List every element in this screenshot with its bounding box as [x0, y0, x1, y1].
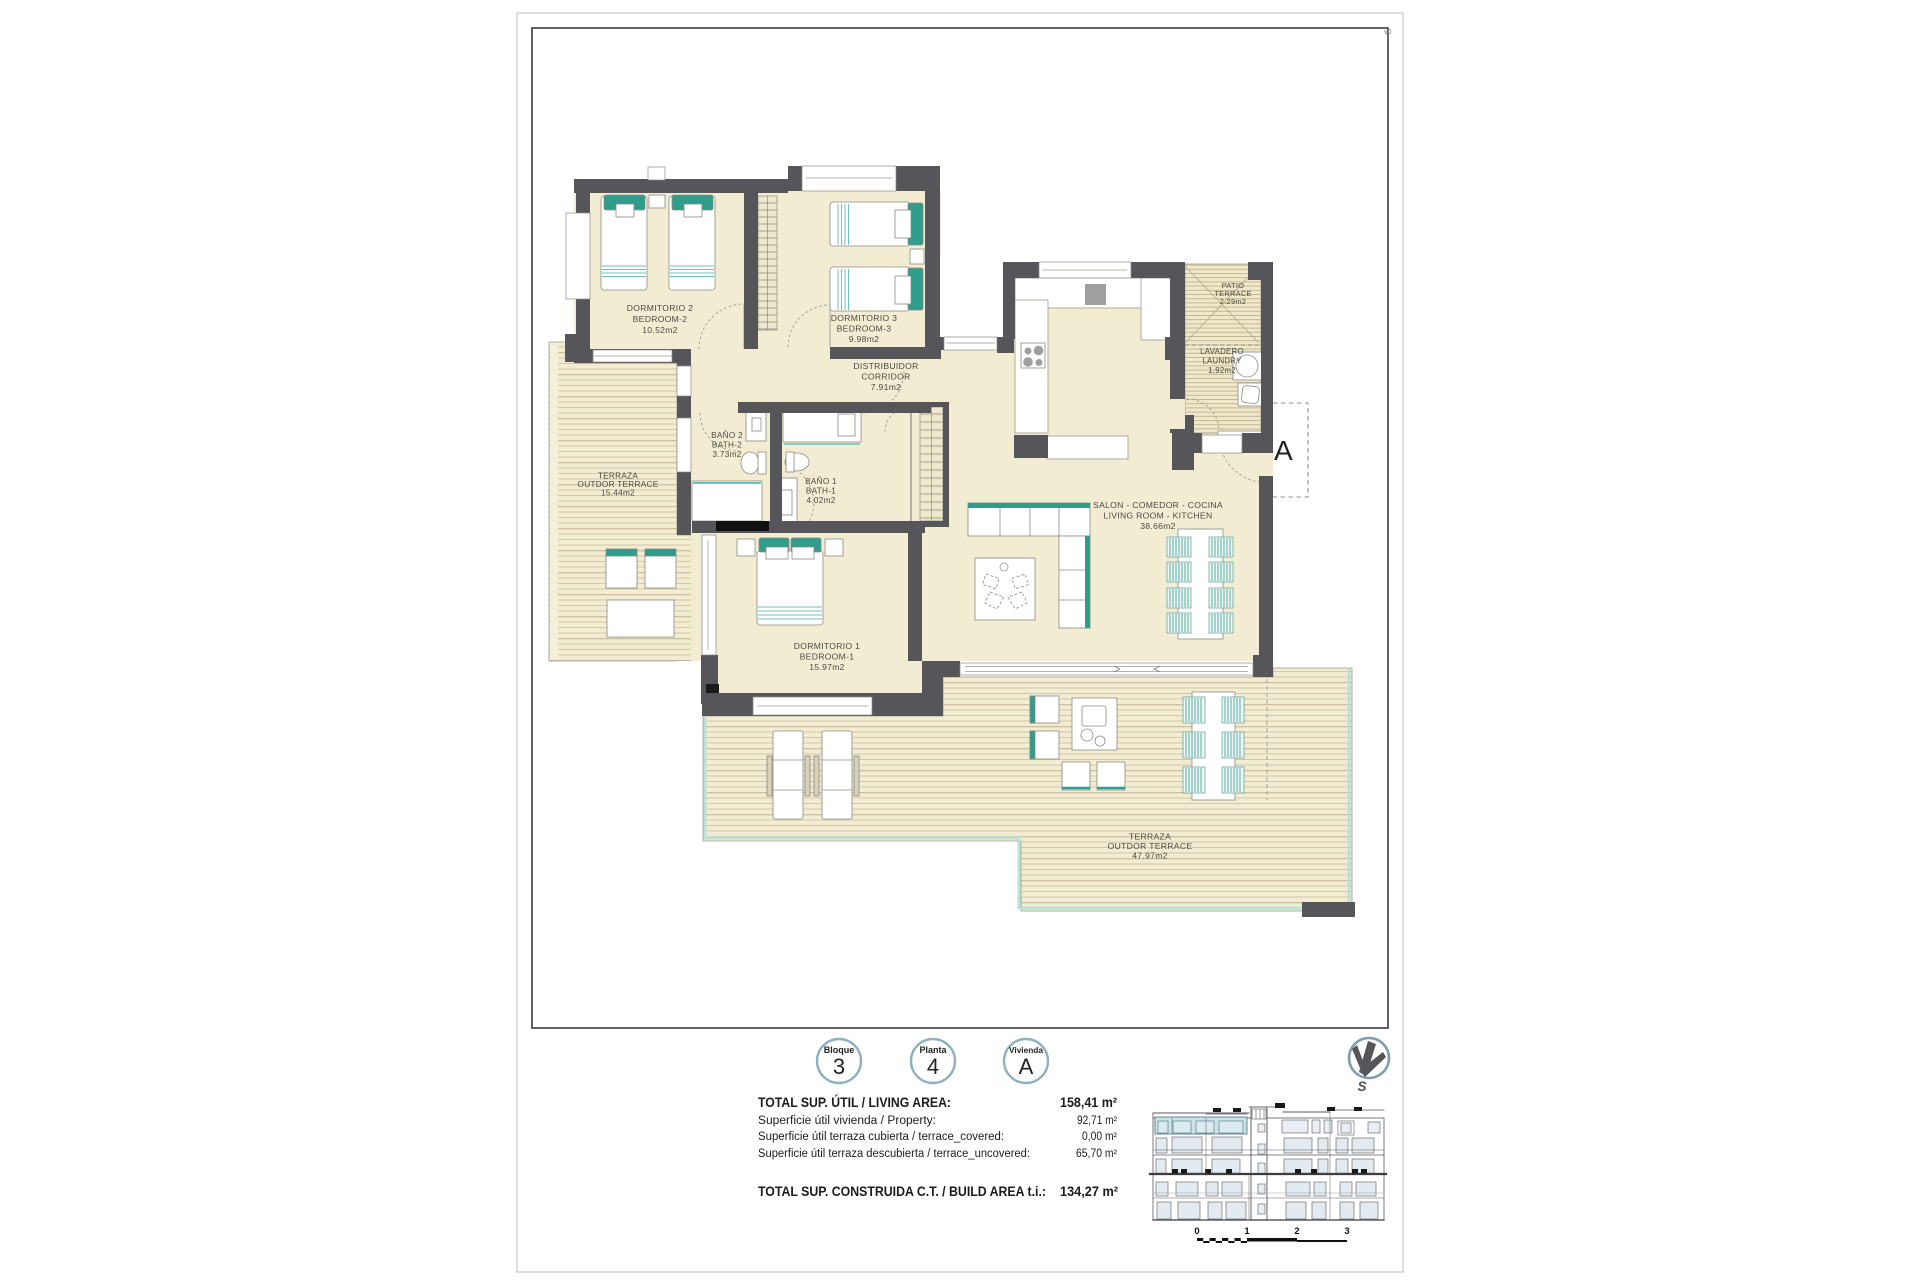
- svg-text:BAÑO 2: BAÑO 2: [711, 430, 743, 440]
- svg-text:BEDROOM-2: BEDROOM-2: [633, 314, 688, 324]
- svg-text:CORRIDOR: CORRIDOR: [861, 372, 910, 382]
- svg-text:BEDROOM-1: BEDROOM-1: [800, 652, 855, 662]
- svg-text:10.52m2: 10.52m2: [642, 325, 678, 335]
- svg-text:A: A: [1274, 435, 1293, 466]
- svg-text:A: A: [1019, 1054, 1034, 1079]
- svg-text:DORMITORIO 1: DORMITORIO 1: [794, 641, 860, 651]
- svg-text:3: 3: [833, 1054, 845, 1079]
- svg-text:LAVADERO: LAVADERO: [1200, 347, 1244, 356]
- svg-text:LIVING ROOM - KITCHEN: LIVING ROOM - KITCHEN: [1104, 511, 1213, 521]
- svg-text:2: 2: [1294, 1226, 1299, 1237]
- svg-text:BAÑO 1: BAÑO 1: [805, 476, 837, 486]
- svg-text:47.97m2: 47.97m2: [1132, 851, 1168, 861]
- svg-text:92,71 m²: 92,71 m²: [1077, 1115, 1117, 1127]
- svg-text:15.97m2: 15.97m2: [809, 662, 845, 672]
- svg-text:SALON - COMEDOR - COCINA: SALON - COMEDOR - COCINA: [1093, 500, 1223, 510]
- svg-text:TERRAZA: TERRAZA: [1129, 832, 1171, 842]
- svg-text:Superficie útil terraza descub: Superficie útil terraza descubierta / te…: [758, 1148, 1030, 1160]
- svg-text:DORMITORIO 2: DORMITORIO 2: [627, 303, 693, 313]
- svg-text:v0: v0: [1384, 29, 1392, 36]
- svg-text:4: 4: [927, 1054, 939, 1079]
- svg-text:38.66m2: 38.66m2: [1140, 521, 1176, 531]
- svg-text:0,00 m²: 0,00 m²: [1082, 1131, 1117, 1143]
- svg-text:1,92m2: 1,92m2: [1208, 366, 1236, 375]
- svg-text:65,70 m²: 65,70 m²: [1076, 1148, 1117, 1160]
- svg-text:2.29m2: 2.29m2: [1220, 297, 1246, 306]
- svg-text:BATH-1: BATH-1: [806, 487, 836, 496]
- svg-text:3: 3: [1344, 1226, 1349, 1237]
- svg-text:134,27 m²: 134,27 m²: [1060, 1183, 1118, 1199]
- svg-text:3.73m2: 3.73m2: [712, 450, 741, 459]
- svg-text:0: 0: [1194, 1226, 1199, 1237]
- svg-text:Superficie útil vivienda / Pro: Superficie útil vivienda / Property:: [758, 1115, 936, 1127]
- svg-text:Superficie útil terraza cubier: Superficie útil terraza cubierta / terra…: [758, 1131, 1004, 1143]
- svg-text:S: S: [1357, 1079, 1366, 1094]
- svg-text:OUTDOR TERRACE: OUTDOR TERRACE: [1108, 841, 1193, 851]
- svg-text:DORMITORIO 3: DORMITORIO 3: [831, 313, 897, 323]
- svg-text:DISTRIBUIDOR: DISTRIBUIDOR: [853, 361, 918, 371]
- svg-text:15.44m2: 15.44m2: [601, 489, 635, 498]
- svg-text:9.98m2: 9.98m2: [849, 334, 879, 344]
- svg-text:TOTAL SUP. CONSTRUIDA C.T. / B: TOTAL SUP. CONSTRUIDA C.T. / BUILD AREA …: [758, 1183, 1046, 1199]
- svg-text:1: 1: [1244, 1226, 1250, 1237]
- svg-text:7.91m2: 7.91m2: [871, 382, 901, 392]
- svg-text:BEDROOM-3: BEDROOM-3: [837, 324, 892, 334]
- svg-text:TOTAL SUP. ÚTIL / LIVING AREA:: TOTAL SUP. ÚTIL / LIVING AREA:: [758, 1093, 951, 1110]
- svg-text:BATH-2: BATH-2: [712, 441, 742, 450]
- svg-text:158,41 m²: 158,41 m²: [1060, 1094, 1117, 1110]
- svg-text:LAUNDRY: LAUNDRY: [1202, 357, 1242, 366]
- svg-text:4.02m2: 4.02m2: [806, 496, 835, 505]
